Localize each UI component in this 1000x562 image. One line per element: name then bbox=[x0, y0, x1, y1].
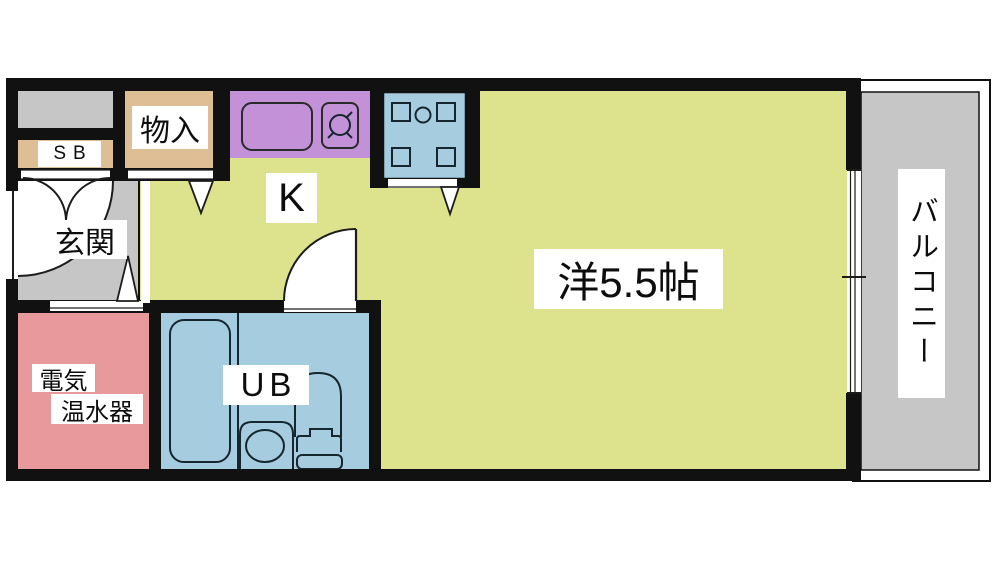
wall bbox=[213, 78, 230, 181]
kitchen-counter bbox=[230, 91, 370, 158]
main-room-label: 洋5.5帖 bbox=[534, 249, 723, 309]
wall bbox=[846, 393, 861, 481]
entrance-label: 玄関 bbox=[43, 220, 127, 259]
balcony-label: バルコニー bbox=[898, 169, 945, 398]
wall bbox=[113, 78, 125, 181]
opening bbox=[21, 170, 110, 180]
opening bbox=[50, 301, 143, 311]
water-heater-label-2: 温水器 bbox=[51, 394, 143, 424]
shoebox-label: SB bbox=[38, 141, 101, 167]
wall bbox=[7, 78, 861, 91]
wall bbox=[149, 313, 161, 469]
window-opening bbox=[847, 170, 861, 393]
storage-label: 物入 bbox=[132, 106, 208, 149]
wall bbox=[369, 300, 381, 469]
wall bbox=[370, 179, 388, 188]
stove-icon bbox=[322, 103, 358, 148]
washer-pan-icon bbox=[383, 92, 466, 179]
opening bbox=[284, 301, 356, 312]
meter-box bbox=[18, 91, 113, 128]
floorplan-drawing bbox=[0, 0, 1000, 562]
wall bbox=[7, 469, 861, 481]
water-heater-label-1: 電気 bbox=[32, 364, 95, 392]
kitchen-label: K bbox=[266, 173, 317, 223]
wall bbox=[370, 78, 383, 186]
wall bbox=[466, 78, 480, 186]
kitchen-sink-icon bbox=[242, 103, 312, 150]
floorplan: SB 物入 K 玄関 洋5.5帖 UB 電気 温水器 バルコニー bbox=[0, 0, 1000, 562]
unit-bath-label: UB bbox=[223, 365, 309, 405]
passage-opening bbox=[141, 181, 150, 303]
opening bbox=[128, 170, 213, 180]
wall bbox=[7, 128, 113, 140]
wall bbox=[846, 78, 861, 170]
wall bbox=[457, 179, 480, 188]
